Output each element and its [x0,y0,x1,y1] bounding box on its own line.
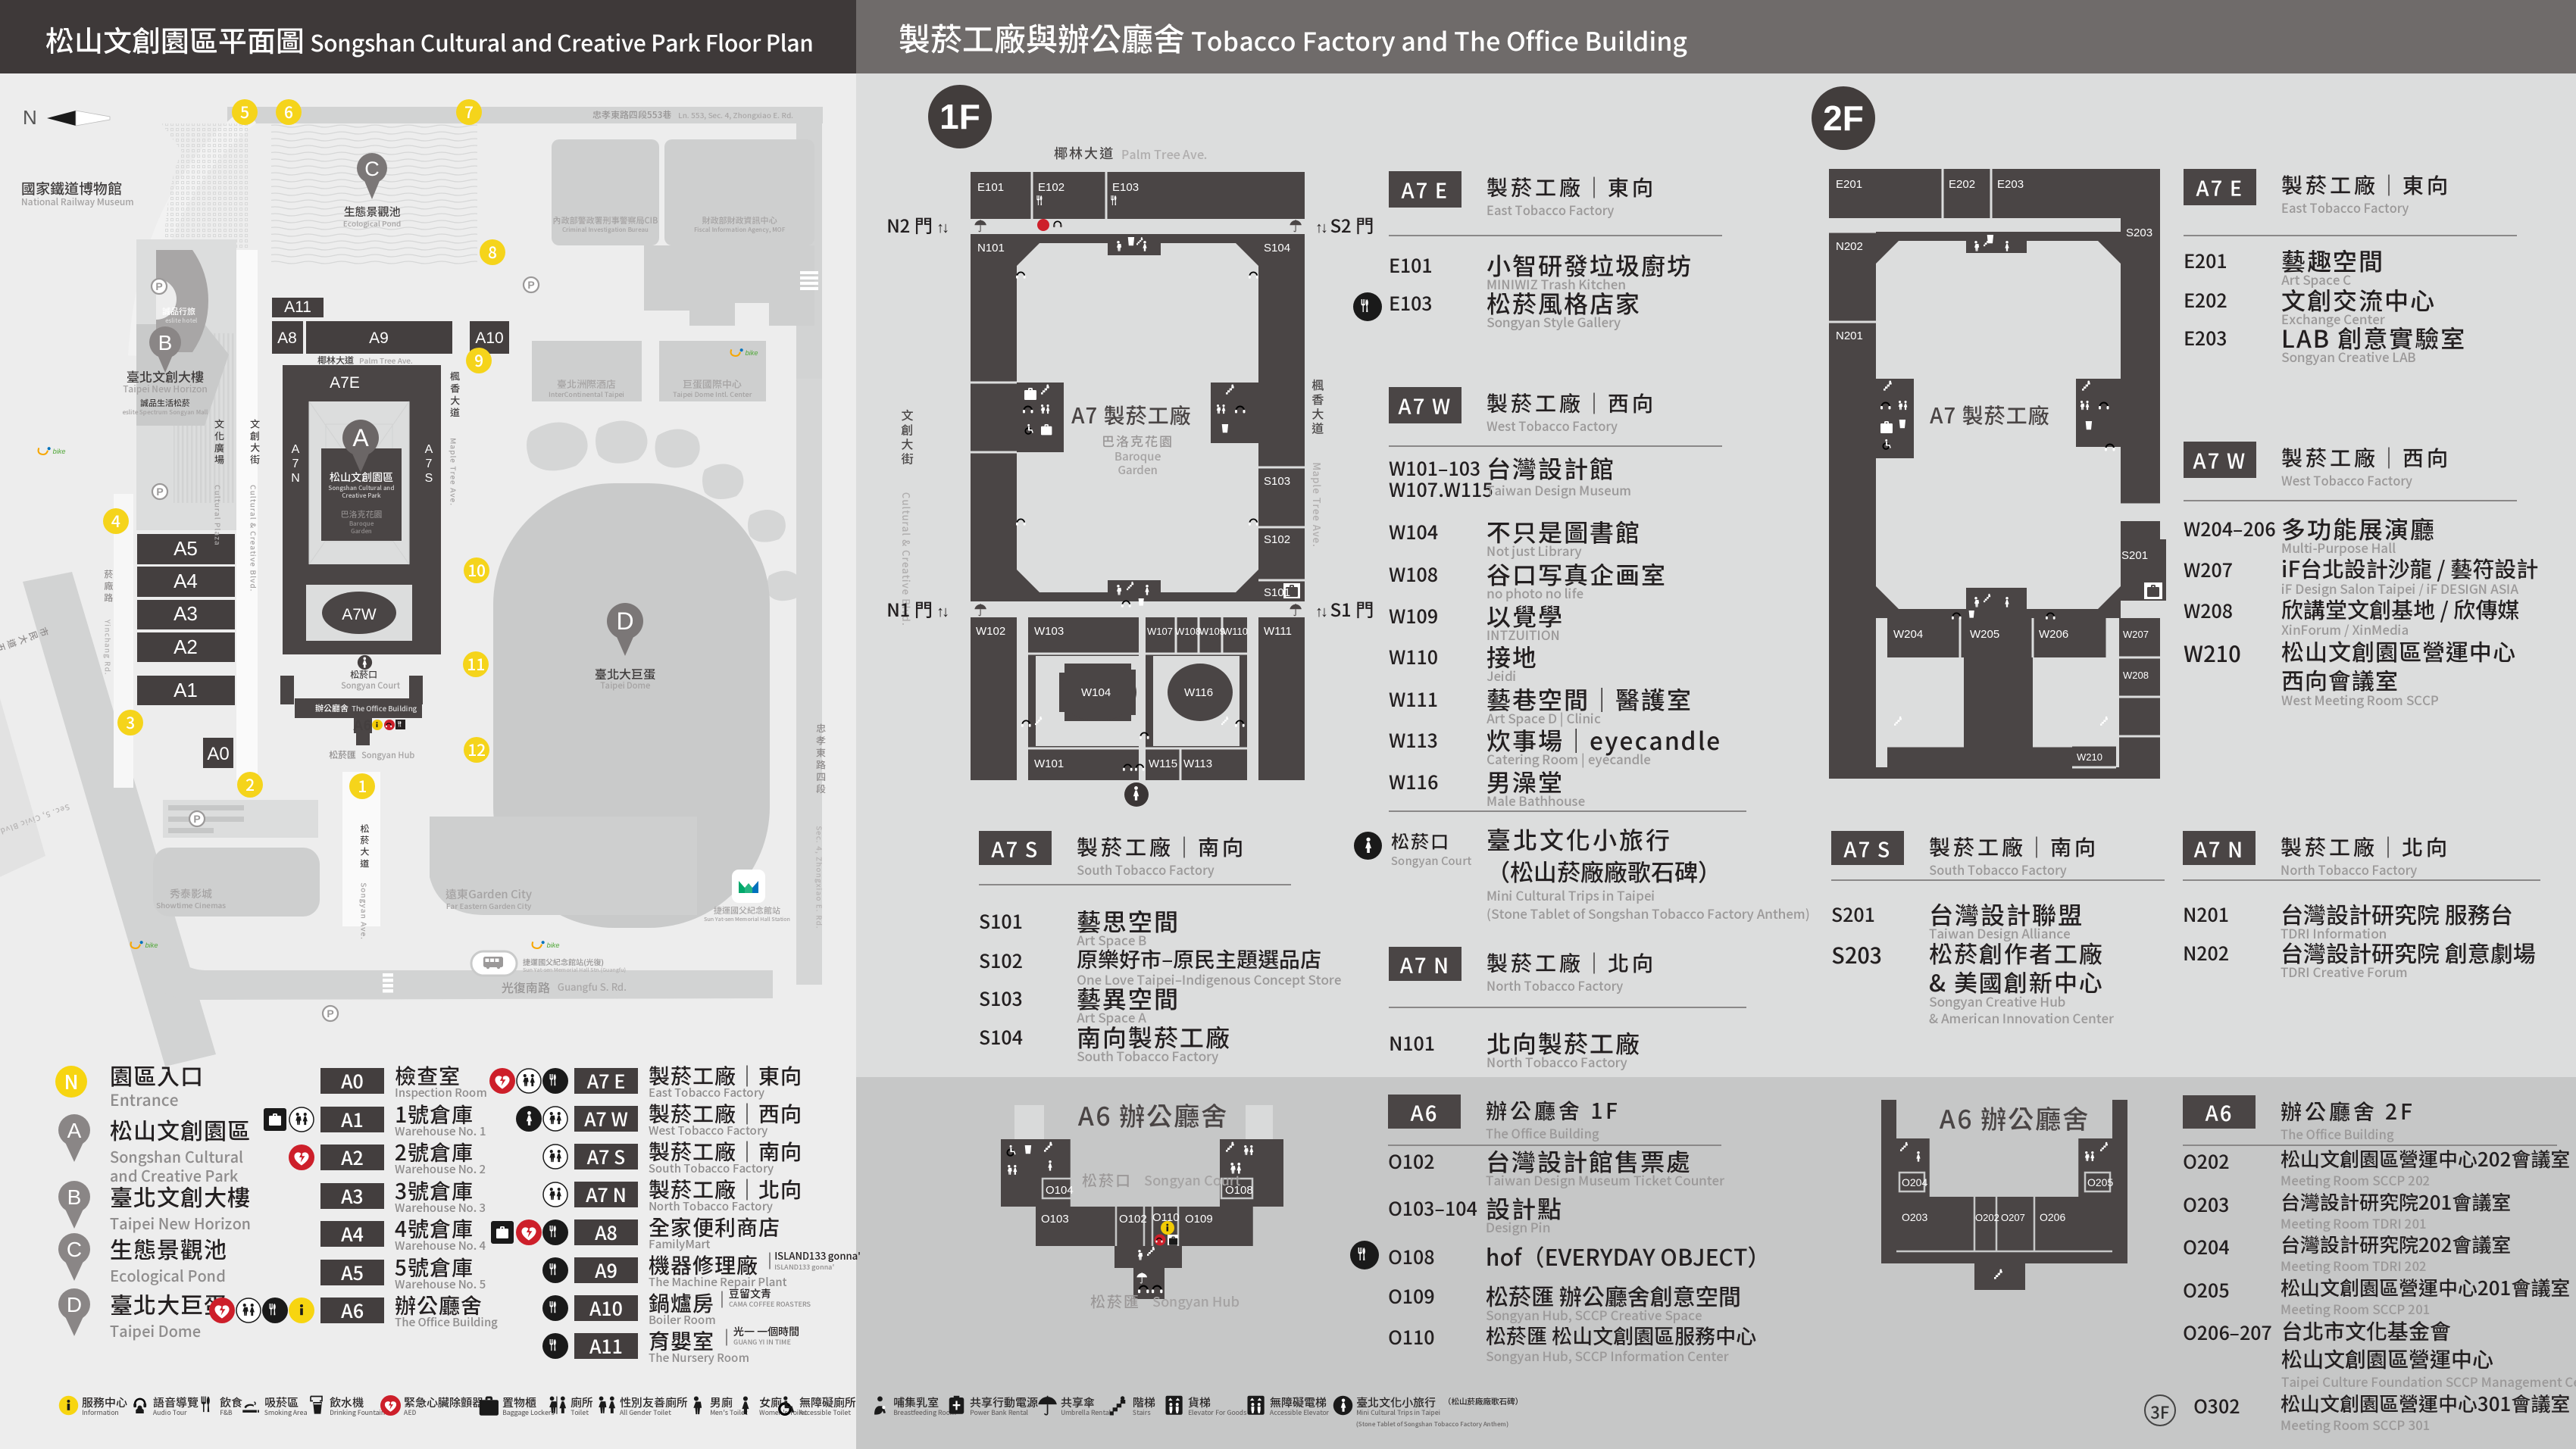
svg-text:A: A [352,424,369,451]
svg-text:W103: W103 [1034,625,1064,638]
svg-text:W101: W101 [1034,757,1064,770]
svg-text:S104: S104 [1264,242,1290,255]
svg-text:A: A [292,443,300,456]
svg-text:A9: A9 [369,329,389,347]
svg-text:O202: O202 [1975,1212,1999,1223]
svg-text:W205: W205 [1970,628,1999,641]
svg-text:S103: S103 [1264,475,1290,488]
svg-text:7: 7 [426,457,433,470]
svg-text:O102: O102 [1119,1213,1147,1226]
svg-text:W115: W115 [1149,757,1177,770]
svg-text:O205: O205 [2087,1176,2113,1188]
svg-text:B: B [67,1185,82,1209]
svg-text:O207: O207 [2001,1212,2025,1223]
svg-text:E102: E102 [1038,181,1064,194]
svg-text:W210: W210 [2077,751,2102,763]
svg-text:O104: O104 [1046,1184,1074,1197]
svg-text:A10: A10 [475,329,503,347]
svg-text:A5: A5 [174,537,198,560]
svg-text:E202: E202 [1949,178,1975,191]
svg-text:O206: O206 [2040,1211,2065,1223]
svg-text:B: B [158,331,173,354]
svg-text:N101: N101 [977,242,1005,255]
svg-text:bike: bike [746,349,758,357]
svg-text:7: 7 [292,457,299,470]
svg-text:W104: W104 [1081,686,1111,699]
svg-text:N201: N201 [1836,329,1863,342]
svg-text:A3: A3 [174,602,198,625]
svg-text:W204: W204 [1893,628,1923,641]
svg-text:A4: A4 [174,570,198,592]
svg-text:D: D [67,1293,82,1316]
svg-text:O103: O103 [1041,1213,1069,1226]
svg-text:O204: O204 [1902,1176,1927,1188]
svg-text:S102: S102 [1264,533,1290,546]
svg-text:A1: A1 [174,679,198,701]
svg-text:W107: W107 [1147,626,1173,637]
svg-text:N202: N202 [1836,240,1863,253]
svg-text:W109: W109 [1199,626,1225,637]
svg-text:W116: W116 [1184,686,1213,699]
svg-text:W102: W102 [976,625,1005,638]
svg-text:A6: A6 [353,718,371,734]
svg-text:bike: bike [145,942,158,949]
svg-text:E203: E203 [1997,178,2024,191]
svg-text:O109: O109 [1185,1213,1213,1226]
svg-text:S101: S101 [1264,586,1290,599]
svg-text:S201: S201 [2121,549,2148,562]
svg-text:S203: S203 [2126,226,2152,239]
svg-text:A: A [425,443,433,456]
svg-text:W208: W208 [2123,670,2149,681]
svg-text:W110: W110 [1223,626,1248,637]
svg-text:W206: W206 [2039,628,2068,641]
svg-text:W108: W108 [1175,626,1201,637]
svg-text:O203: O203 [1902,1211,1927,1223]
svg-text:E101: E101 [977,181,1004,194]
svg-text:W113: W113 [1183,757,1212,770]
svg-text:E103: E103 [1112,181,1139,194]
svg-text:A: A [67,1119,82,1142]
svg-text:C: C [364,158,380,180]
svg-text:N: N [23,106,37,129]
svg-text:bike: bike [547,942,560,949]
svg-text:bike: bike [53,448,66,455]
svg-text:A11: A11 [284,298,311,316]
svg-text:C: C [67,1238,82,1261]
svg-text:A8: A8 [277,329,297,347]
svg-text:A0: A0 [207,744,229,764]
svg-text:W207: W207 [2123,629,2149,640]
svg-text:A2: A2 [174,635,198,658]
svg-text:E201: E201 [1836,178,1862,191]
svg-text:W111: W111 [1264,625,1292,638]
svg-text:A7W: A7W [342,606,377,623]
svg-text:D: D [616,607,633,635]
